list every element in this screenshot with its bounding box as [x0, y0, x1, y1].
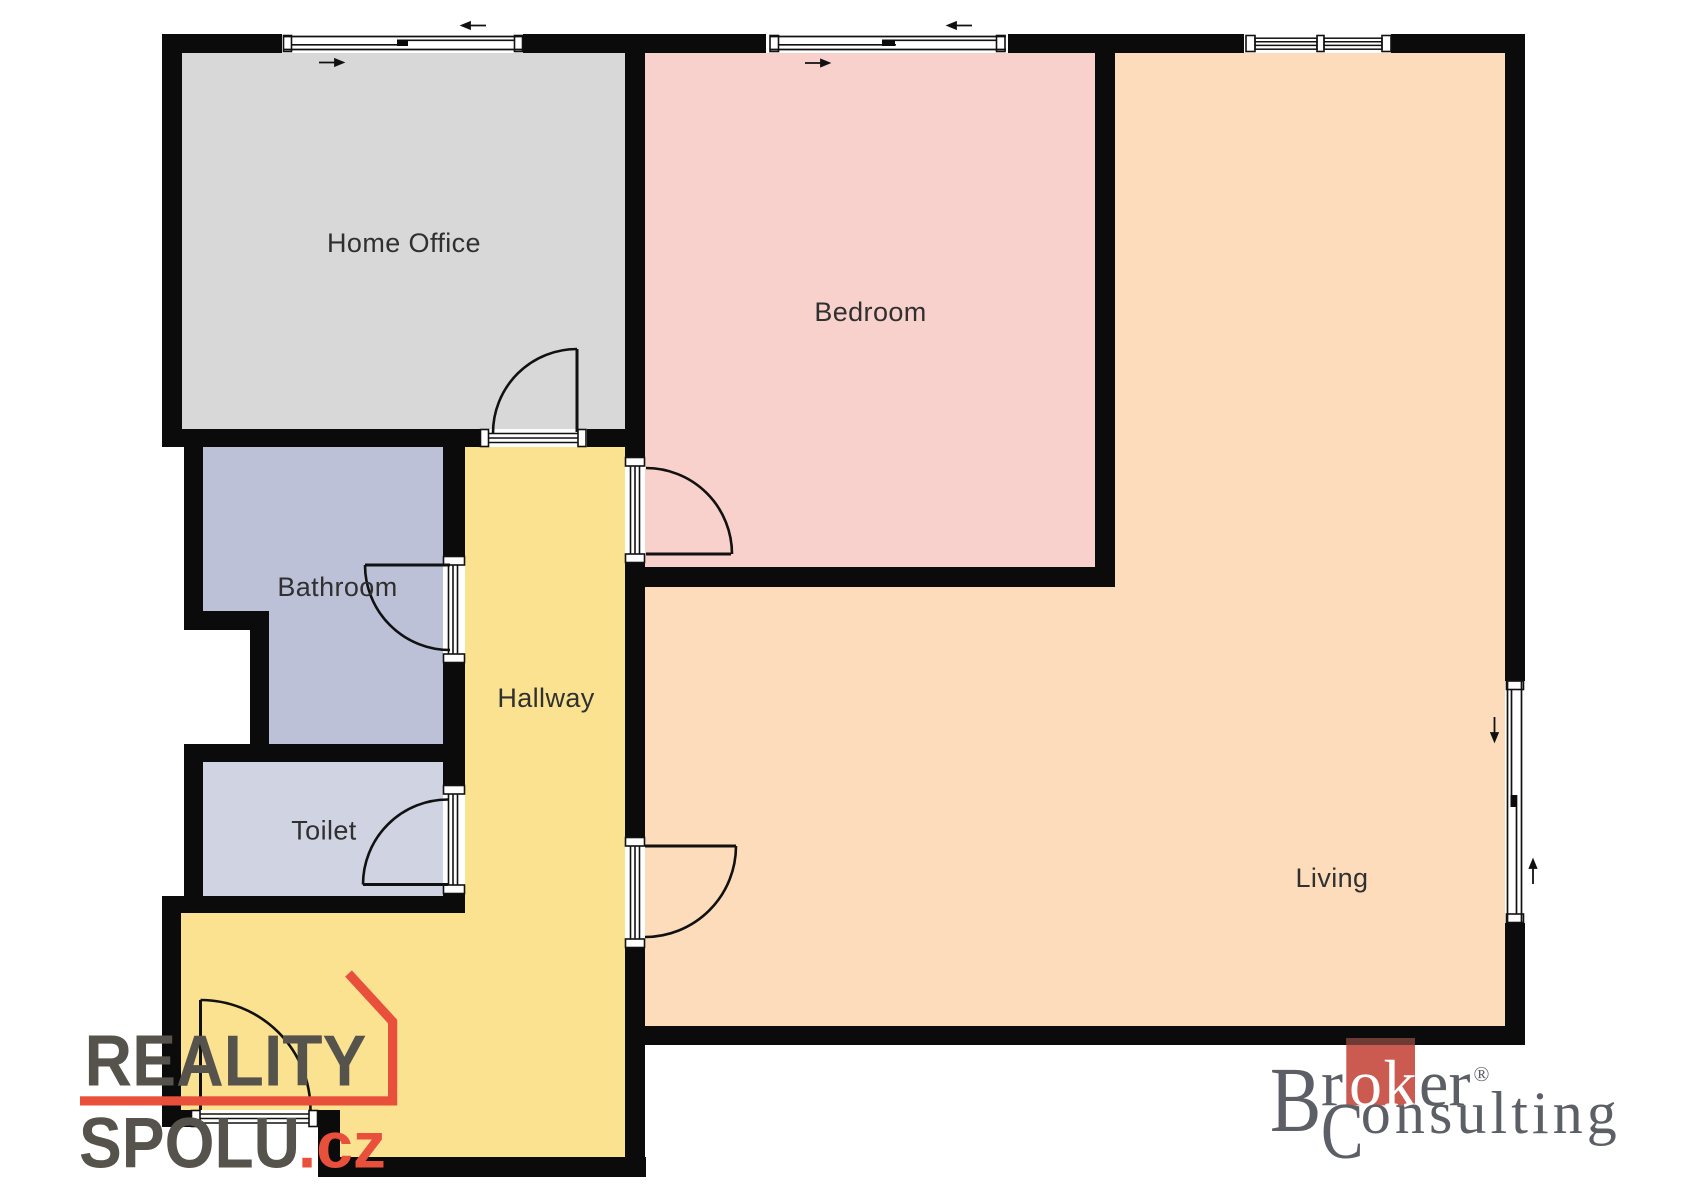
svg-text:Bedroom: Bedroom: [814, 297, 926, 327]
svg-text:Bathroom: Bathroom: [277, 572, 397, 602]
svg-text:B: B: [1270, 1049, 1322, 1152]
svg-text:C: C: [1321, 1086, 1364, 1176]
svg-text:Toilet: Toilet: [291, 816, 357, 846]
svg-text:Living: Living: [1296, 863, 1369, 893]
svg-text:Home Office: Home Office: [327, 228, 481, 258]
svg-text:onsulting: onsulting: [1361, 1080, 1617, 1146]
svg-text:Hallway: Hallway: [497, 683, 594, 713]
svg-text:SPOLU: SPOLU: [79, 1105, 300, 1184]
svg-text:.cz: .cz: [298, 1109, 386, 1182]
svg-text:REALITY: REALITY: [85, 1022, 367, 1102]
